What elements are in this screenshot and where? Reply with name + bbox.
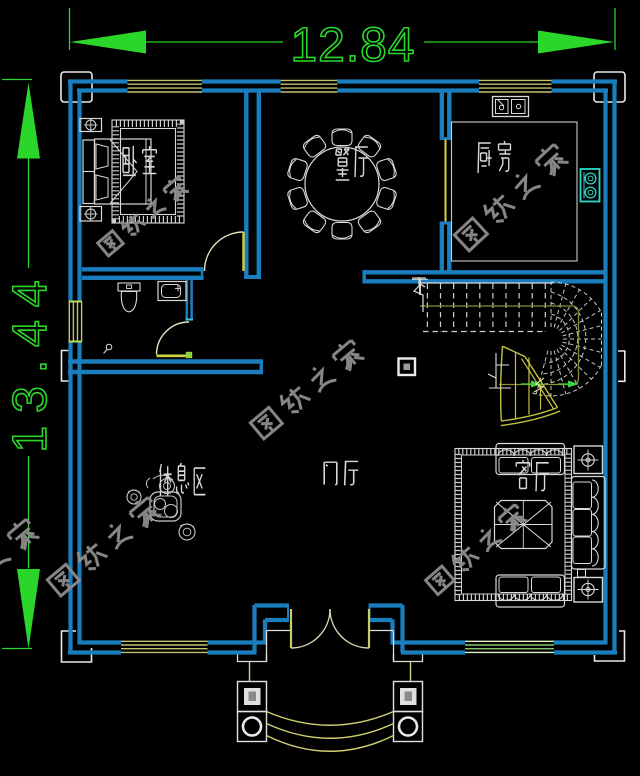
svg-text:12.84: 12.84 (290, 19, 415, 72)
svg-text:13.44: 13.44 (4, 267, 57, 452)
